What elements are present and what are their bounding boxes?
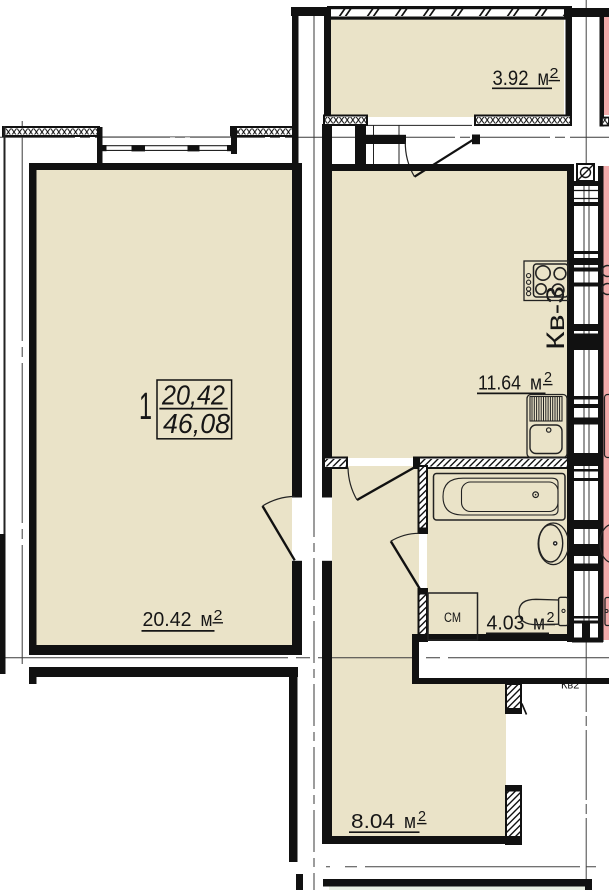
svg-text:2: 2: [550, 65, 559, 82]
svg-text:м: м: [201, 608, 213, 631]
svg-text:м: м: [533, 612, 545, 635]
svg-text:2: 2: [214, 607, 223, 624]
svg-text:м: м: [404, 810, 416, 833]
svg-text:8.04: 8.04: [351, 810, 395, 833]
svg-text:м: м: [538, 67, 550, 90]
svg-text:11.64: 11.64: [478, 372, 521, 395]
svg-text:2: 2: [547, 609, 555, 626]
svg-text:3.92: 3.92: [493, 67, 529, 90]
svg-text:1: 1: [139, 386, 152, 428]
svg-text:20.42: 20.42: [143, 608, 192, 631]
svg-text:СМ: СМ: [444, 610, 461, 625]
svg-text:20,42: 20,42: [161, 380, 225, 411]
svg-text:46,08: 46,08: [163, 408, 230, 439]
svg-text:2: 2: [544, 369, 552, 386]
svg-text:м: м: [530, 372, 542, 395]
svg-text:2: 2: [418, 808, 426, 825]
